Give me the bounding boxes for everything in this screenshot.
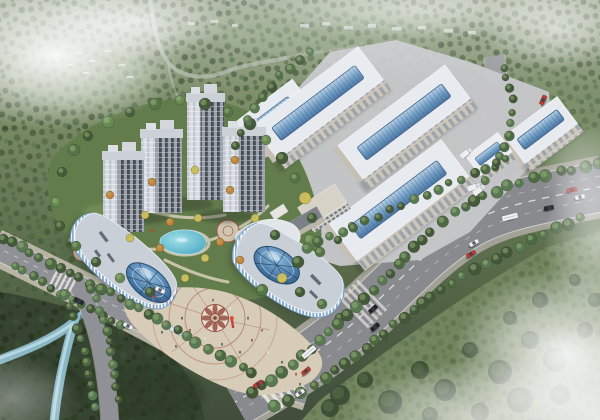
mist-clouds	[0, 0, 600, 420]
aerial-rendering-scene: Aerial bird's-eye architectural renderin…	[0, 0, 600, 420]
atmosphere-tint	[0, 0, 600, 420]
rendering-canvas: Aerial bird's-eye architectural renderin…	[0, 0, 600, 420]
